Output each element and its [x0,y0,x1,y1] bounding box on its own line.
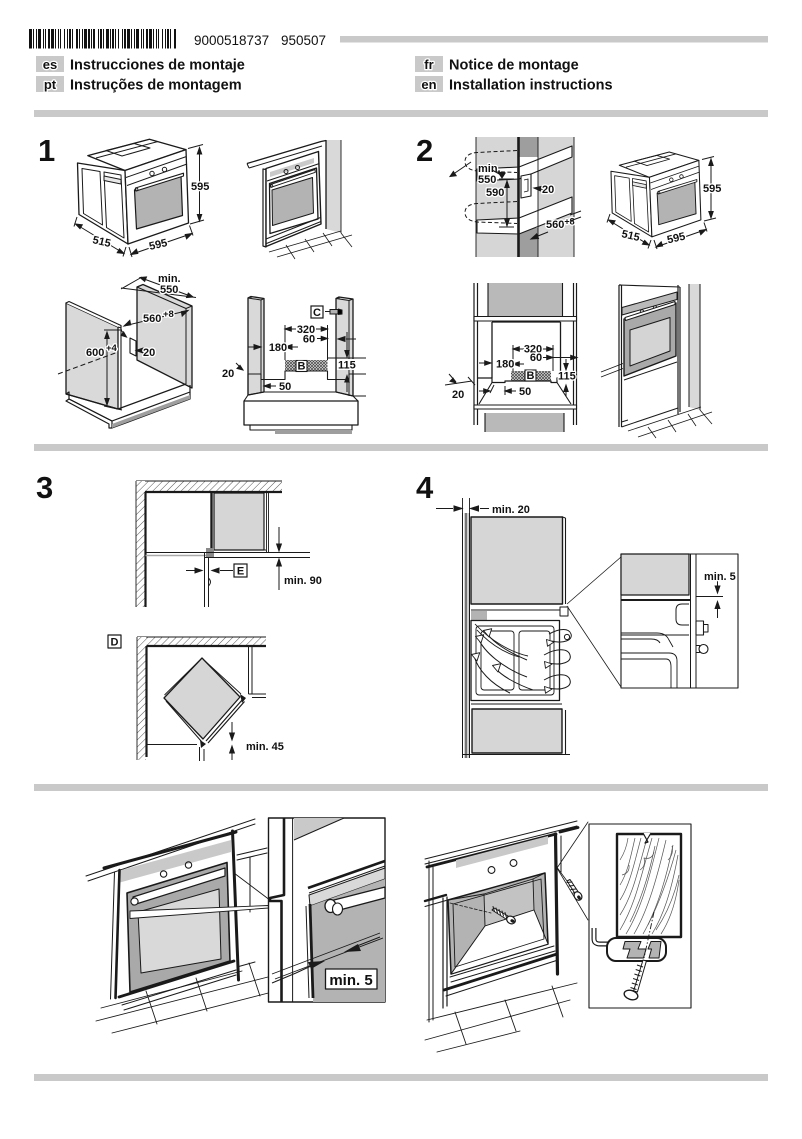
svg-text:550: 550 [160,284,178,296]
svg-text:en: en [421,77,436,92]
svg-text:595: 595 [666,231,687,247]
svg-text:fr: fr [424,57,433,72]
svg-text:Notice de montage: Notice de montage [449,58,579,74]
svg-text:115: 115 [338,360,356,372]
svg-text:515: 515 [620,228,641,244]
svg-text:180: 180 [496,359,514,371]
svg-text:B: B [527,370,535,382]
svg-text:Installation instructions: Installation instructions [449,78,613,94]
svg-text:550: 550 [478,174,496,186]
svg-text:min. 5: min. 5 [704,571,736,583]
svg-text:590: 590 [486,187,504,199]
svg-text:D: D [111,637,119,649]
svg-text:595: 595 [703,183,721,195]
svg-text:20: 20 [542,184,554,196]
svg-text:950507: 950507 [281,33,326,48]
svg-text:es: es [43,57,57,72]
svg-text:min. 5: min. 5 [329,972,372,989]
svg-text:4: 4 [416,470,434,505]
svg-text:515: 515 [91,234,112,250]
svg-text:min. 45: min. 45 [246,741,284,753]
svg-text:B: B [298,361,306,373]
svg-text:20: 20 [222,368,234,380]
svg-text:3: 3 [36,470,53,505]
svg-text:20: 20 [143,347,155,359]
svg-text:595: 595 [148,237,169,253]
svg-text:560: 560 [143,313,161,325]
svg-text:60: 60 [530,352,542,364]
svg-text:1: 1 [38,133,55,168]
svg-text:600: 600 [86,347,104,359]
svg-text:C: C [313,307,321,319]
svg-text:Instruções de montagem: Instruções de montagem [70,78,242,94]
svg-text:595: 595 [191,181,209,193]
svg-text:pt: pt [44,77,57,92]
svg-text:E: E [237,566,244,578]
svg-text:60: 60 [303,334,315,346]
svg-text:min. 90: min. 90 [284,575,322,587]
svg-text:+4: +4 [106,343,118,354]
svg-text:20: 20 [452,389,464,401]
svg-text:50: 50 [279,381,291,393]
svg-text:min. 20: min. 20 [492,504,530,516]
svg-text:50: 50 [519,386,531,398]
svg-text:Instrucciones de montaje: Instrucciones de montaje [70,58,245,74]
svg-text:180: 180 [269,342,287,354]
svg-text:115: 115 [558,371,576,383]
svg-text:+8: +8 [163,309,174,320]
svg-text:9000518737: 9000518737 [194,33,269,48]
svg-text:2: 2 [416,133,433,168]
